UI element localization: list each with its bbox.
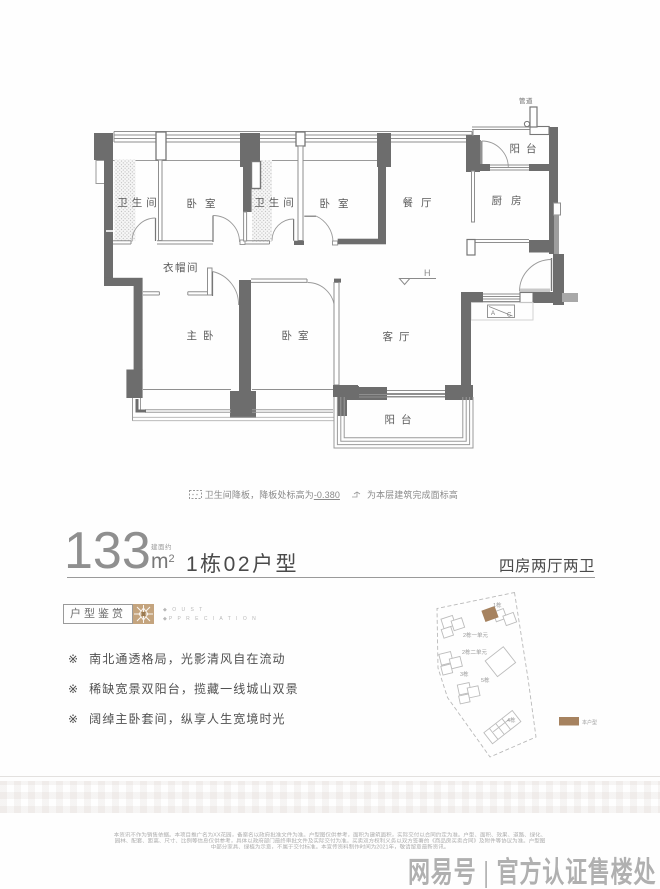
- svg-text:H: H: [424, 268, 431, 278]
- svg-text:3栋: 3栋: [460, 670, 469, 678]
- svg-text:衣帽间: 衣帽间: [163, 261, 199, 274]
- svg-text:客厅: 客厅: [383, 330, 416, 343]
- svg-text:卧室: 卧室: [320, 197, 357, 210]
- svg-text:阳台: 阳台: [510, 142, 543, 155]
- svg-text:卧室: 卧室: [282, 329, 315, 342]
- svg-text:5栋: 5栋: [481, 676, 490, 684]
- svg-text:4栋: 4栋: [507, 716, 516, 724]
- svg-text:厨房: 厨房: [492, 194, 531, 207]
- svg-text:餐厅: 餐厅: [403, 196, 440, 209]
- svg-text:本户型: 本户型: [582, 719, 597, 726]
- svg-text:阳台: 阳台: [385, 413, 418, 426]
- svg-text:卫生间: 卫生间: [117, 196, 161, 209]
- svg-text:C: C: [507, 313, 512, 319]
- svg-text:1栋: 1栋: [493, 601, 502, 609]
- svg-text:A: A: [491, 311, 495, 317]
- svg-text:2栋二单元: 2栋二单元: [462, 648, 488, 656]
- svg-text:卫生间: 卫生间: [254, 196, 298, 209]
- svg-text:主卧: 主卧: [187, 329, 220, 342]
- svg-text:2栋一单元: 2栋一单元: [463, 631, 489, 639]
- svg-text:管道: 管道: [519, 96, 533, 105]
- svg-text:卧室: 卧室: [187, 197, 224, 210]
